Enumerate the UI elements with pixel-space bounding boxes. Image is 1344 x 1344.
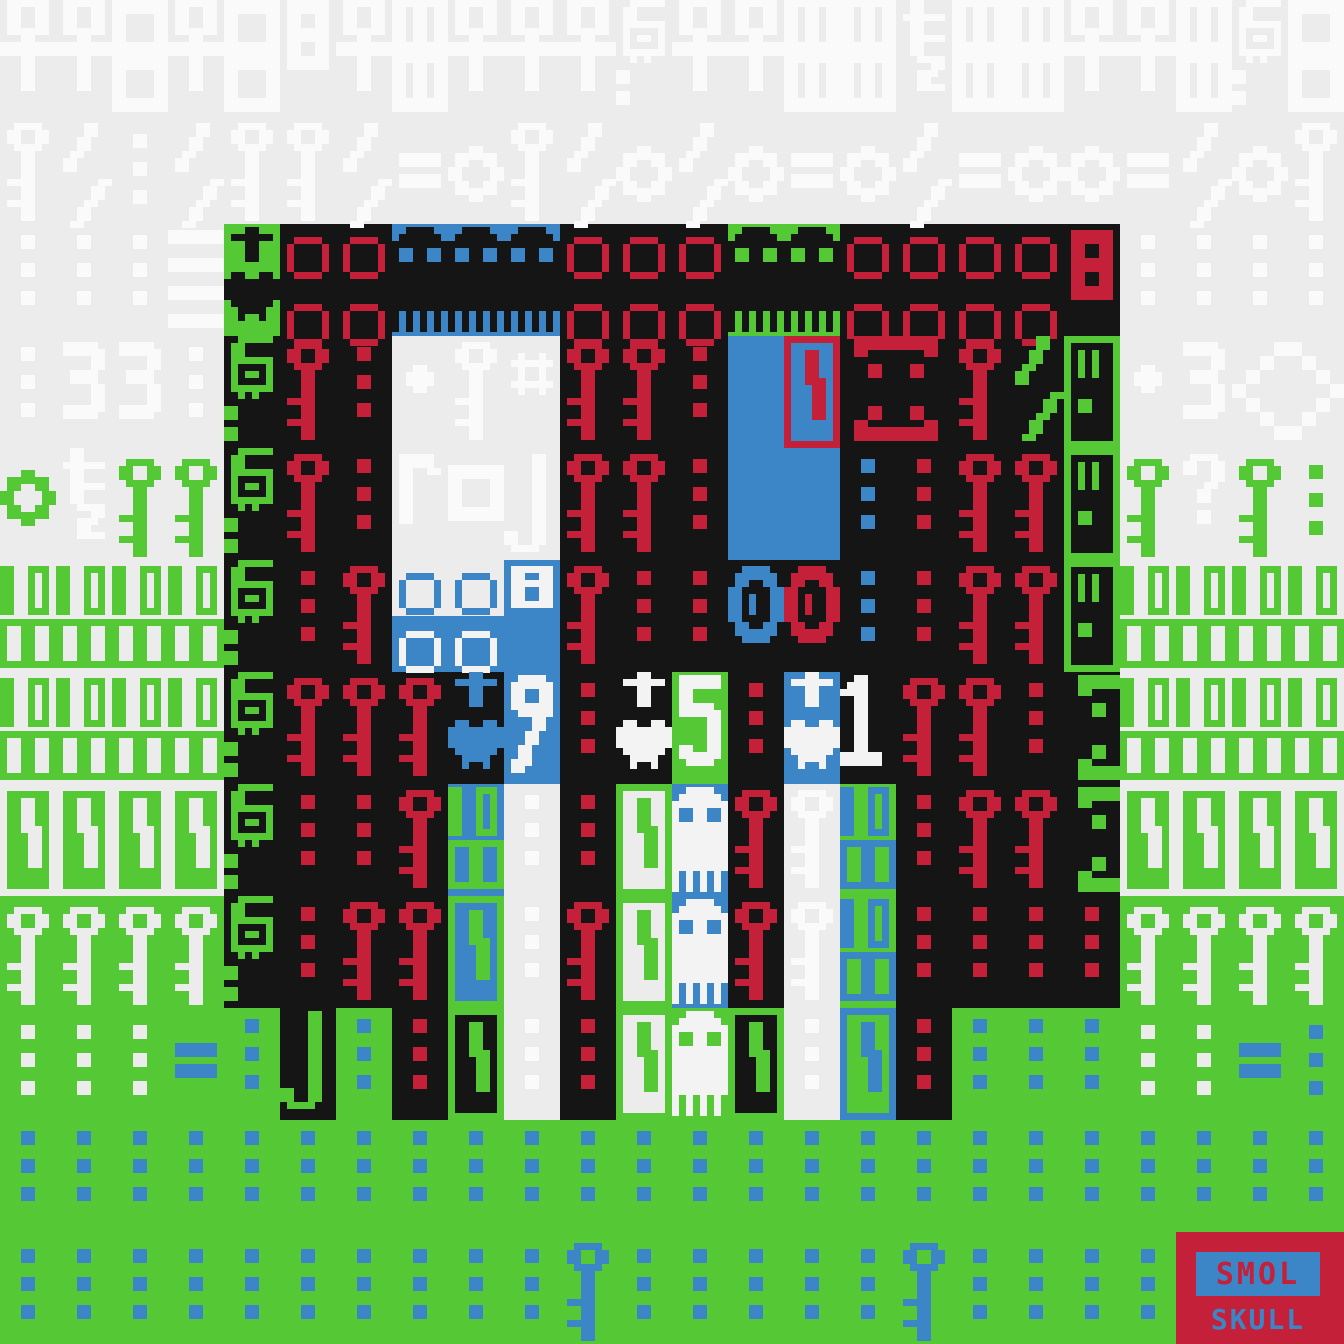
logo-panel: SMOL [1196, 1252, 1320, 1296]
logo-line1: SMOL [1216, 1257, 1300, 1292]
smol-skull-logo: SMOL SKULL [1176, 1232, 1344, 1344]
game-canvas[interactable] [0, 0, 1344, 1344]
game-screen: SMOL SKULL [0, 0, 1344, 1344]
logo-line2: SKULL [1196, 1302, 1320, 1336]
